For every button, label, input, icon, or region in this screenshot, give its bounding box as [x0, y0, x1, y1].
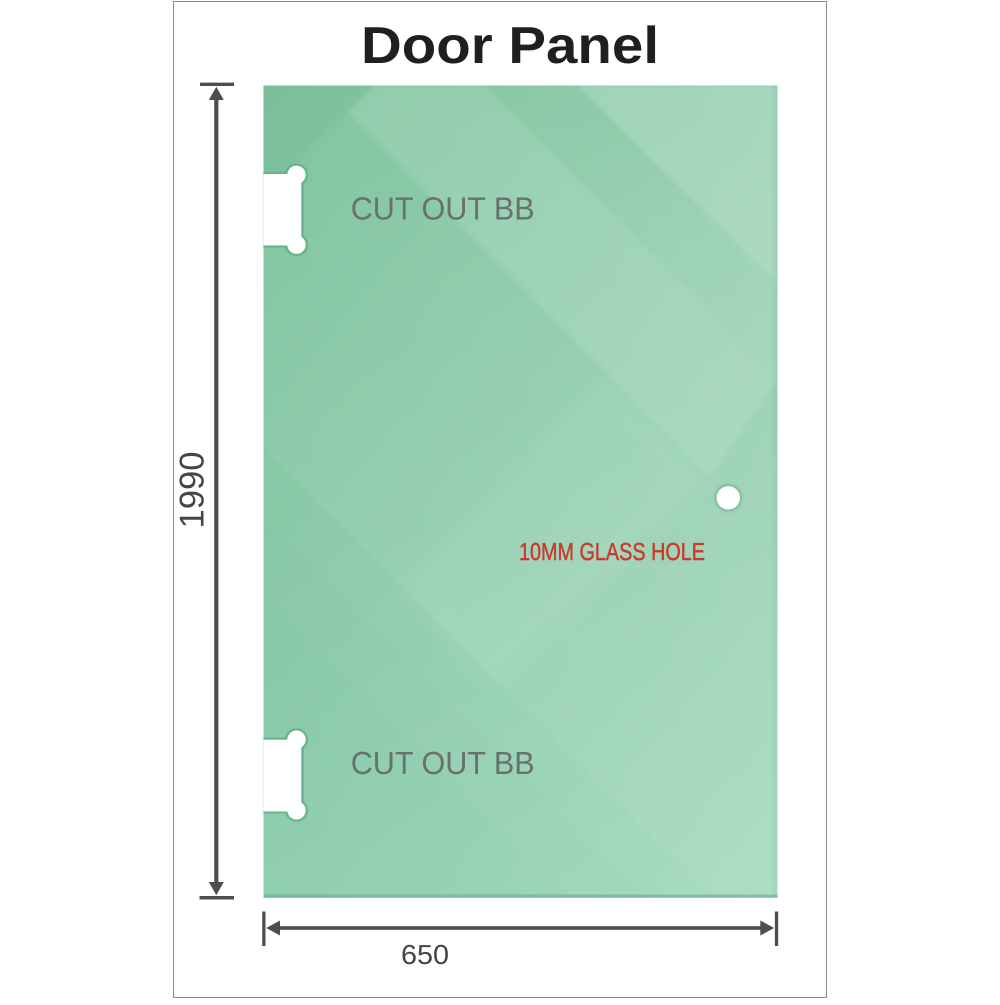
- svg-text:CUT OUT BB: CUT OUT BB: [351, 190, 535, 226]
- svg-text:1990: 1990: [174, 452, 212, 529]
- svg-text:Door Panel: Door Panel: [361, 17, 659, 75]
- svg-text:CUT OUT BB: CUT OUT BB: [351, 745, 535, 781]
- svg-text:10MM GLASS HOLE: 10MM GLASS HOLE: [519, 539, 705, 566]
- svg-text:650: 650: [401, 939, 449, 970]
